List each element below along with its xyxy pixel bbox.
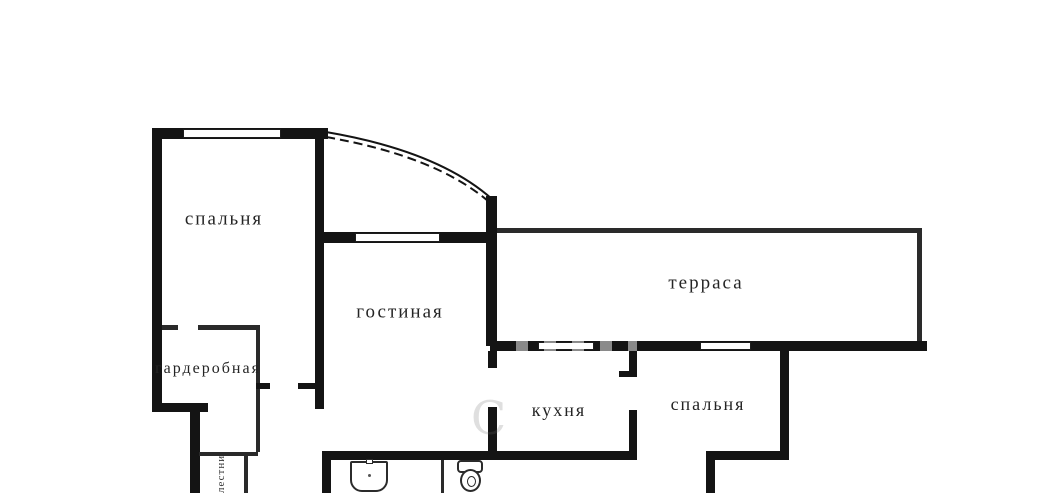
bedroom1-wardrobe-divider-left bbox=[162, 325, 178, 330]
bedroom2-bottom-wall bbox=[706, 451, 789, 460]
curved-wall-solid-line bbox=[326, 132, 492, 199]
kitchen-left-wall-upper bbox=[488, 351, 497, 368]
bedroom2-bottom-left-wall bbox=[706, 455, 715, 493]
stairs-label: лестница bbox=[212, 455, 235, 493]
terrace-right-wall bbox=[917, 228, 922, 346]
shower-drain-icon bbox=[368, 474, 371, 477]
room-label-bedroom-2: спальня bbox=[671, 395, 746, 413]
shower-faucet-icon bbox=[366, 459, 373, 464]
kitchen-right-wall-lower bbox=[629, 410, 637, 455]
hall-strip-vertical-line bbox=[244, 456, 248, 493]
center-vertical-wall bbox=[315, 128, 324, 409]
kitchen-right-wall-upper bbox=[629, 351, 637, 377]
room-label-kitchen: кухня bbox=[532, 401, 586, 419]
bath-left-wall bbox=[322, 451, 331, 493]
room-label-wardrobe: гардеробная bbox=[155, 361, 261, 377]
bedroom1-wardrobe-divider-right bbox=[198, 325, 260, 330]
living-window bbox=[355, 233, 440, 242]
terrace-top-wall bbox=[497, 228, 918, 233]
room-label-terrace: терраса bbox=[668, 274, 743, 293]
watermark-band bbox=[500, 341, 637, 351]
toilet-bowl-icon bbox=[460, 469, 481, 492]
bath-partition bbox=[441, 460, 444, 493]
kitchen-door-jamb bbox=[619, 371, 629, 377]
shower-tray-icon bbox=[350, 461, 388, 492]
hall-door-jamb bbox=[298, 383, 315, 389]
room-label-bedroom-1: спальня bbox=[185, 210, 263, 229]
terrace-window-2 bbox=[700, 342, 751, 350]
living-right-wall bbox=[486, 196, 497, 346]
room-label-living-room: гостиная bbox=[356, 303, 444, 322]
toilet-bowl-inner-icon bbox=[467, 476, 476, 487]
curved-wall-dashed-line bbox=[326, 137, 488, 201]
hall-left-partition bbox=[256, 389, 260, 452]
bedroom2-right-wall bbox=[780, 345, 789, 460]
bedroom1-window bbox=[183, 129, 281, 138]
floor-plan: спальнягостинаятеррасагардеробнаякухнясп… bbox=[0, 0, 1048, 493]
watermark-letter: С bbox=[471, 391, 506, 445]
